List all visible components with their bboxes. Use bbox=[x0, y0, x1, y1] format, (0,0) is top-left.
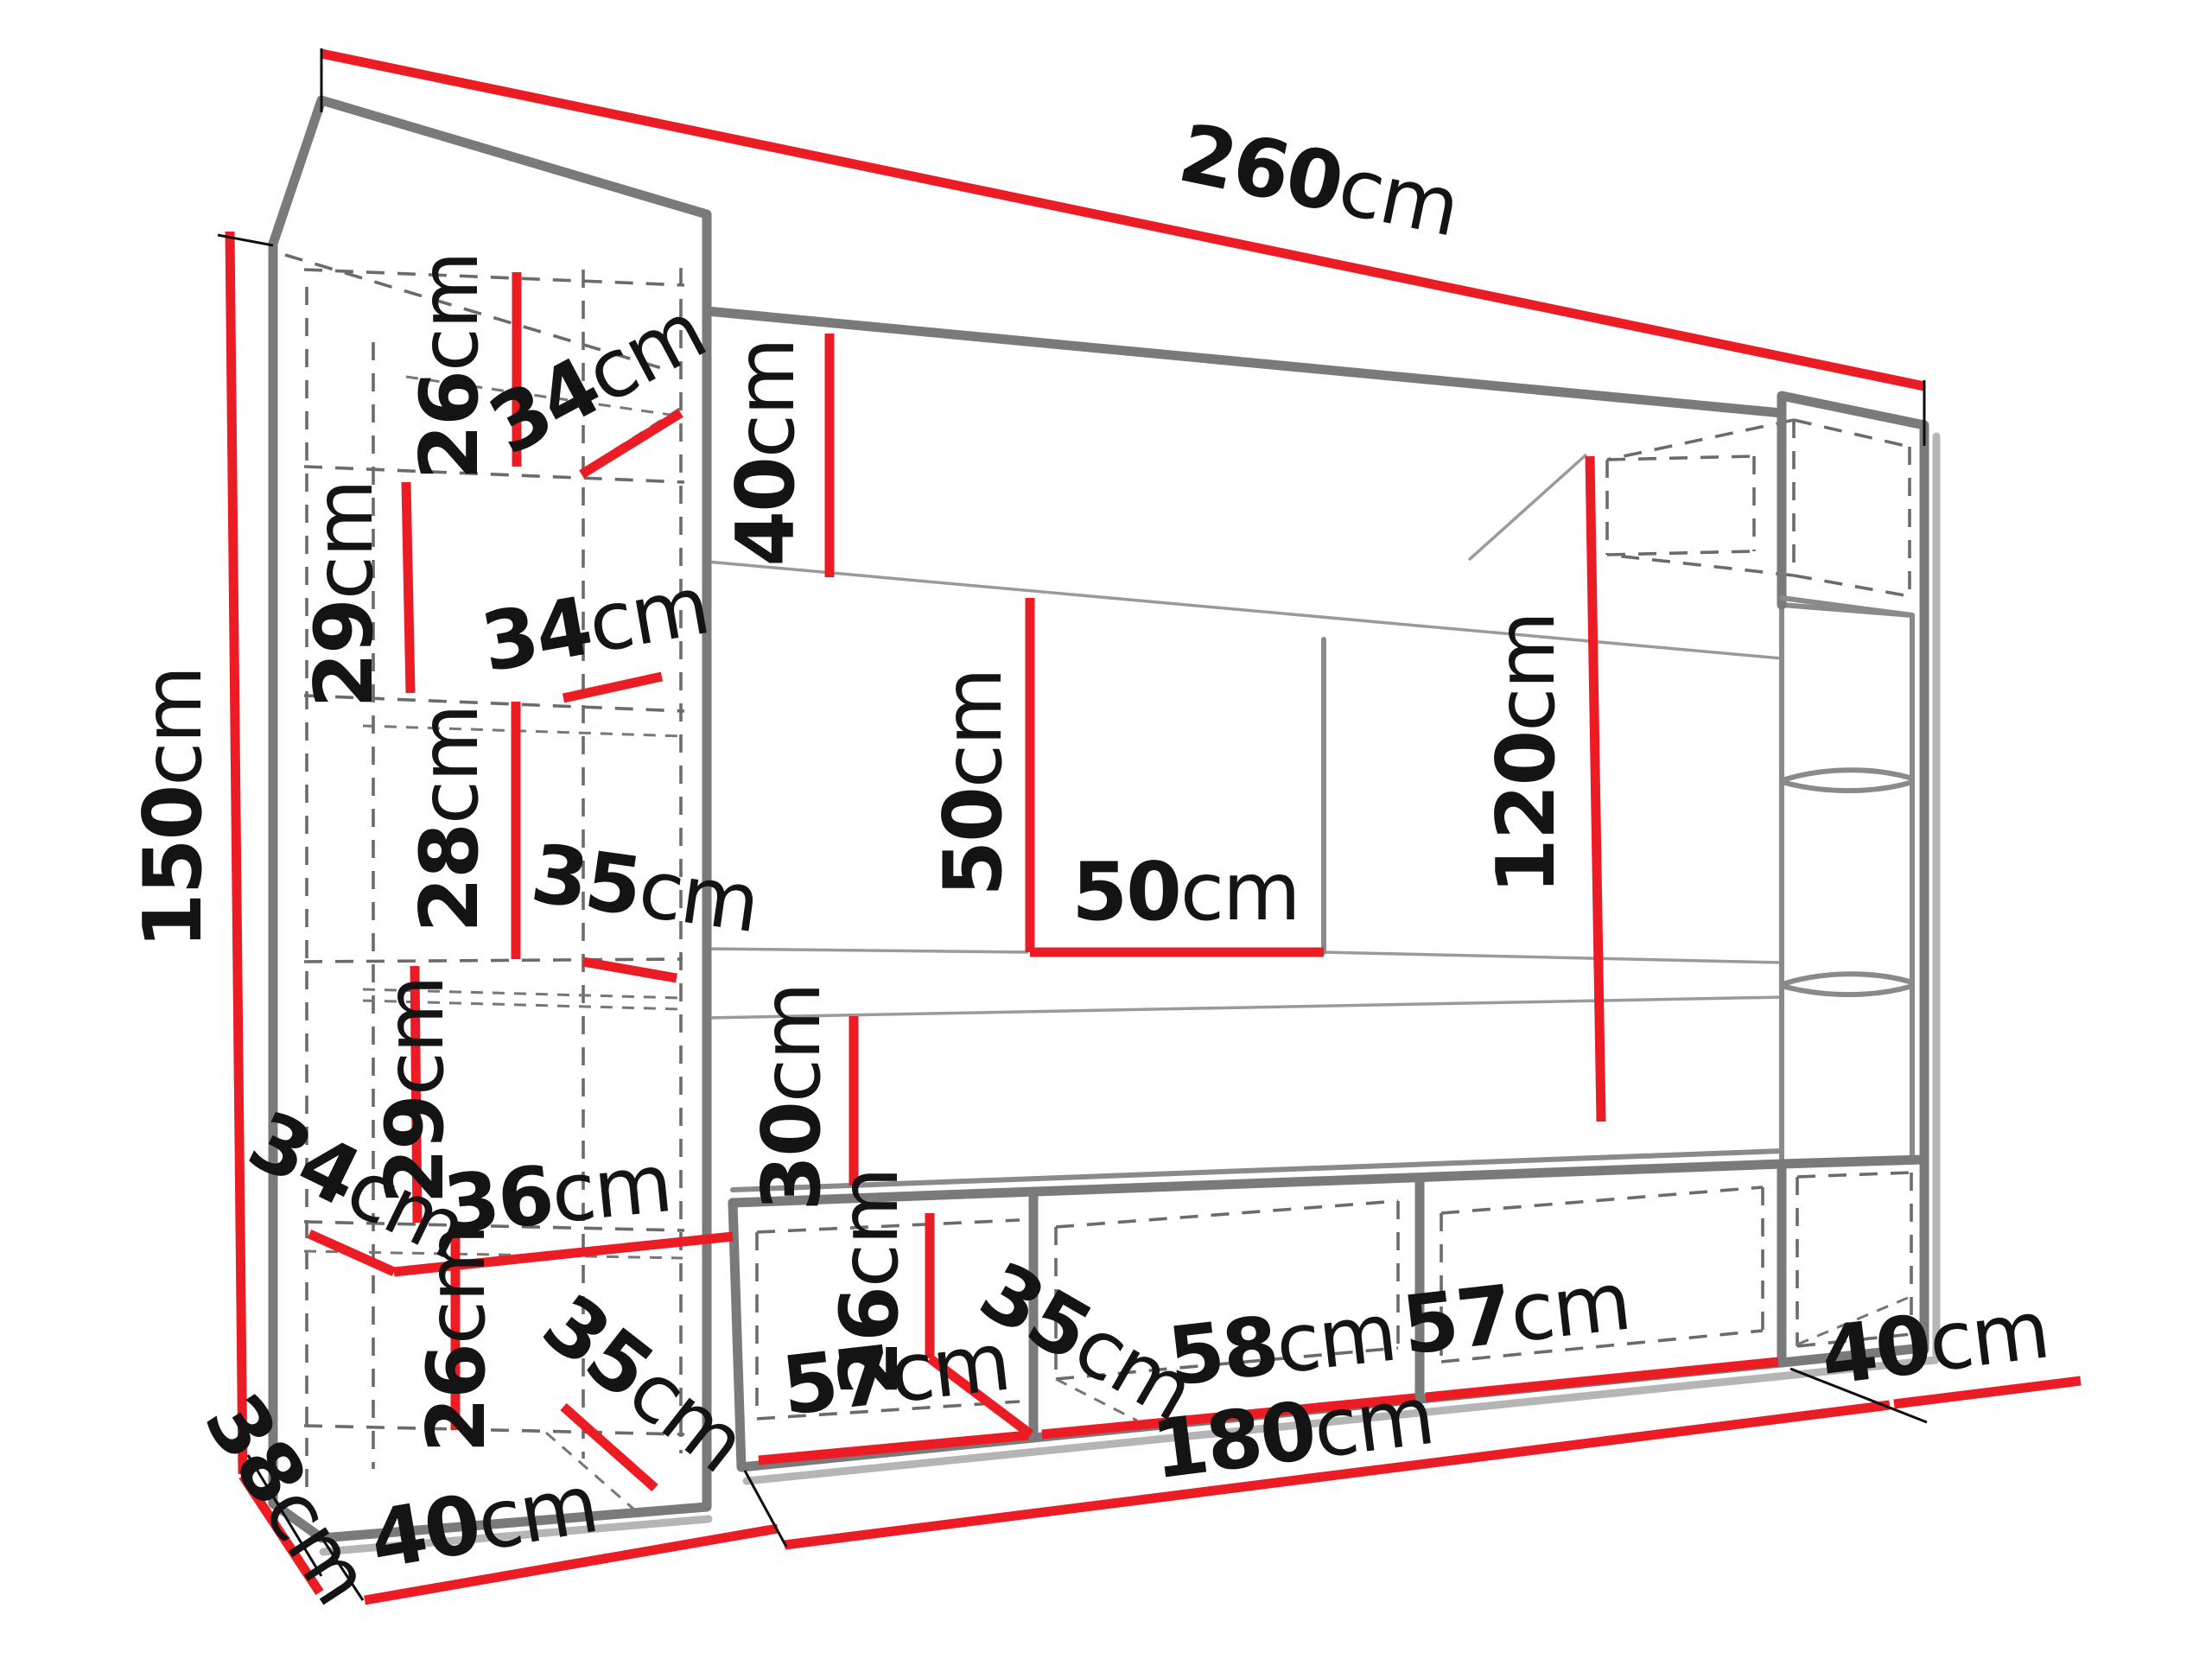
top-panel-inner-corner bbox=[1469, 454, 1586, 560]
hidden-edge bbox=[1797, 1173, 1911, 1177]
dim-unit: cm bbox=[926, 669, 1020, 788]
hidden-edge bbox=[1607, 555, 1794, 575]
right-cabinet-shelf bbox=[1785, 974, 1910, 983]
dim-unit: cm bbox=[403, 705, 496, 824]
dim-label-left-top-compartment: 26cm bbox=[403, 252, 496, 480]
dim-label-right-section-height: 120cm bbox=[1479, 613, 1573, 894]
dim-label-left-compartment-2: 29cm bbox=[297, 480, 391, 708]
hidden-edge bbox=[1794, 575, 1910, 596]
dim-line-overall-height bbox=[230, 232, 243, 1474]
wall-cabinet-and-right-edge bbox=[1782, 396, 1924, 1350]
dim-value: 40 bbox=[719, 458, 812, 566]
dim-value: 260 bbox=[1172, 106, 1350, 231]
dim-unit: cm bbox=[582, 558, 715, 671]
back-panel-edge bbox=[1324, 952, 1782, 963]
dim-value: 50 bbox=[926, 788, 1020, 896]
dim-unit: cm bbox=[885, 1315, 1014, 1421]
dim-value: 40 bbox=[1816, 1297, 1935, 1403]
dim-line-left-lower-shelf-depth bbox=[583, 962, 677, 978]
dim-value: 57 bbox=[1398, 1268, 1516, 1373]
dim-unit: cm bbox=[368, 976, 461, 1096]
dim-label-left-bottom-depth: 35cm bbox=[526, 1276, 763, 1490]
right-cabinet-shelf bbox=[1785, 783, 1910, 791]
dim-label-overall-height: 150cm bbox=[126, 667, 219, 949]
dim-unit: cm bbox=[1479, 613, 1573, 732]
dim-line-right-section-height bbox=[1590, 456, 1601, 1122]
dim-label-left-lower-shelf-depth: 35cm bbox=[526, 827, 765, 951]
dim-label-left-mid-shelf-depth: 34cm bbox=[474, 558, 715, 690]
hidden-edge bbox=[1441, 1187, 1763, 1213]
dim-value: 58 bbox=[1164, 1299, 1282, 1404]
dim-label-lowboard-compartment-3: 57cm bbox=[1398, 1255, 1635, 1373]
dim-value: 40 bbox=[364, 1477, 486, 1587]
dim-label-lowboard-compartment-1: 57cm bbox=[778, 1315, 1014, 1433]
dim-unit: cm bbox=[403, 252, 496, 372]
hidden-edge bbox=[1607, 551, 1754, 555]
dimension-labels: 260cm 150cm 38cm 40cm 180cm 40cm 120cm 2… bbox=[126, 106, 2053, 1620]
top-panel-bottom-edge bbox=[707, 562, 1782, 658]
dim-value: 120 bbox=[1479, 732, 1573, 894]
dim-label-side-depth-left: 38cm bbox=[187, 1378, 389, 1620]
dim-label-tv-niche-width: 50cm bbox=[1071, 845, 1299, 938]
dim-unit: cm bbox=[823, 1168, 916, 1287]
back-panel-edge bbox=[707, 997, 1782, 1018]
dim-value: 57 bbox=[778, 1328, 896, 1433]
dim-label-top-panel-height: 40cm bbox=[719, 339, 812, 566]
diagram-canvas: 260cm 150cm 38cm 40cm 180cm 40cm 120cm 2… bbox=[0, 0, 2212, 1659]
dim-unit: cm bbox=[126, 667, 219, 786]
dim-unit: cm bbox=[633, 842, 764, 950]
dim-value: 150 bbox=[126, 786, 219, 949]
dim-line-left-compartment-2 bbox=[406, 482, 410, 693]
dim-label-tv-niche-height: 50cm bbox=[926, 669, 1020, 896]
dim-value: 34 bbox=[474, 579, 597, 690]
dim-line-overall-width bbox=[321, 54, 1924, 386]
dim-unit: cm bbox=[745, 983, 838, 1103]
dim-label-overall-width: 260cm bbox=[1172, 106, 1466, 255]
hidden-edge bbox=[1607, 456, 1754, 460]
dim-value: 29 bbox=[297, 600, 391, 708]
dim-line-left-mid-shelf-depth bbox=[563, 677, 662, 698]
hidden-edge bbox=[1607, 420, 1794, 460]
dim-unit: cm bbox=[719, 339, 812, 458]
right-cabinet-shelf bbox=[1785, 987, 1910, 995]
secondary-edges bbox=[707, 454, 1912, 1194]
dim-value: 28 bbox=[403, 824, 496, 932]
dim-value: 26 bbox=[410, 1344, 503, 1452]
dim-unit: cm bbox=[410, 1225, 503, 1344]
hidden-edge bbox=[1794, 420, 1910, 447]
dim-unit: cm bbox=[1180, 845, 1300, 938]
dim-unit: cm bbox=[547, 1136, 675, 1241]
dim-label-left-bottom-compartment: 26cm bbox=[410, 1225, 503, 1452]
dim-unit: cm bbox=[1271, 1286, 1400, 1392]
dim-unit: cm bbox=[1923, 1282, 2053, 1389]
hidden-edge bbox=[1056, 1201, 1398, 1227]
dim-unit: cm bbox=[297, 480, 391, 600]
hidden-shelf-edge bbox=[304, 959, 683, 962]
dim-value: 50 bbox=[1071, 845, 1179, 938]
back-panel-edge bbox=[707, 949, 1028, 952]
dim-label-left-compartment-3: 28cm bbox=[403, 705, 496, 932]
right-cabinet-shelf bbox=[1785, 770, 1910, 779]
dim-value: 35 bbox=[526, 827, 646, 934]
furniture-dimension-diagram: 260cm 150cm 38cm 40cm 180cm 40cm 120cm 2… bbox=[0, 0, 2212, 1659]
dim-unit: cm bbox=[470, 1457, 603, 1569]
dim-unit: cm bbox=[1505, 1255, 1634, 1361]
dim-label-left-top-shelf-depth: 34cm bbox=[474, 283, 719, 473]
dim-unit: cm bbox=[1331, 139, 1466, 255]
